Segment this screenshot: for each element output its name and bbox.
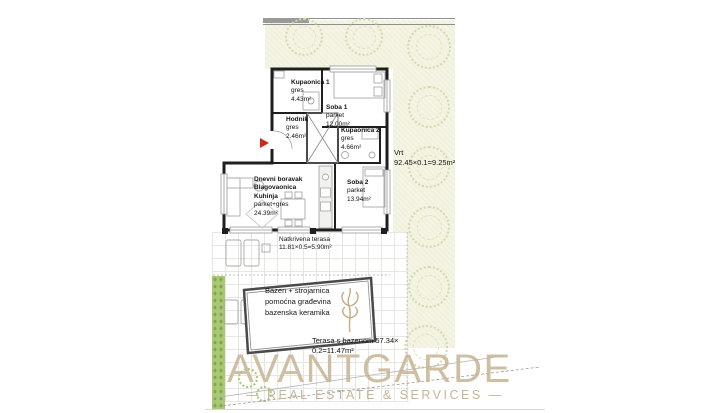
floor-plan-page: Kupaonica 1 gres 4.43m² Soba 1 parket 12… <box>0 0 705 413</box>
label-vrt: Vrt 92.45×0.1=9.25m² <box>394 148 455 168</box>
entrance-arrow-icon <box>260 138 269 148</box>
room-name: Soba 1 <box>326 104 350 112</box>
room-floor: parket+gres <box>254 201 302 209</box>
room-name: Kuhinja <box>254 193 302 201</box>
kitchen-counter <box>319 166 332 228</box>
room-floor: gres <box>291 87 330 95</box>
room-area: 2.46m² <box>286 133 308 141</box>
room-label-kupaonica-2: Kupaonica 2 gres 4.66m² <box>341 127 380 152</box>
room-name: Hodnik <box>286 116 308 124</box>
room-label-soba-2: Soba 2 parket 13.94m² <box>347 179 371 204</box>
bazen-line: bazenska keramika <box>265 308 331 319</box>
brand-logo: AVANTGARDE <box>227 347 512 392</box>
area-calc: 92.45×0.1=9.25m² <box>394 158 455 168</box>
room-area: 24.39m² <box>254 210 302 218</box>
room-name: Blagovaonica <box>254 184 302 192</box>
area-calc: 11.81×0.5=5.90m² <box>279 244 332 252</box>
room-area: 4.43m² <box>291 96 330 104</box>
bazen-line: Bazen + strojarnica <box>265 286 331 297</box>
room-label-dnevni-boravak: Dnevni boravak Blagovaonica Kuhinja park… <box>254 176 302 218</box>
room-name: Dnevni boravak <box>254 176 302 184</box>
room-area: 13.94m² <box>347 196 371 204</box>
room-label-soba-1: Soba 1 parket 12.00m² <box>326 104 350 129</box>
label-natkrivena-terasa: Natkrivena terasa 11.81×0.5=5.90m² <box>279 236 332 253</box>
area-name: Natkrivena terasa <box>279 236 332 244</box>
room-label-kupaonica-1: Kupaonica 1 gres 4.43m² <box>291 79 330 104</box>
room-floor: parket <box>347 187 371 195</box>
area-name: Vrt <box>394 148 455 158</box>
room-area: 4.66m² <box>341 144 380 152</box>
room-floor: parket <box>326 112 350 120</box>
room-label-hodnik: Hodnik gres 2.46m² <box>286 116 308 141</box>
bazen-line: pomoćna građevina <box>265 297 331 308</box>
label-bazen: Bazen + strojarnica pomoćna građevina ba… <box>265 286 331 319</box>
room-name: Kupaonica 2 <box>341 127 380 135</box>
brand-tagline: — REAL ESTATE & SERVICES — <box>246 388 504 402</box>
area-name: Terasa s bazenom 57.34× <box>312 336 399 346</box>
room-floor: gres <box>341 135 380 143</box>
room-name: Soba 2 <box>347 179 371 187</box>
room-floor: gres <box>286 124 308 132</box>
room-name: Kupaonica 1 <box>291 79 330 87</box>
